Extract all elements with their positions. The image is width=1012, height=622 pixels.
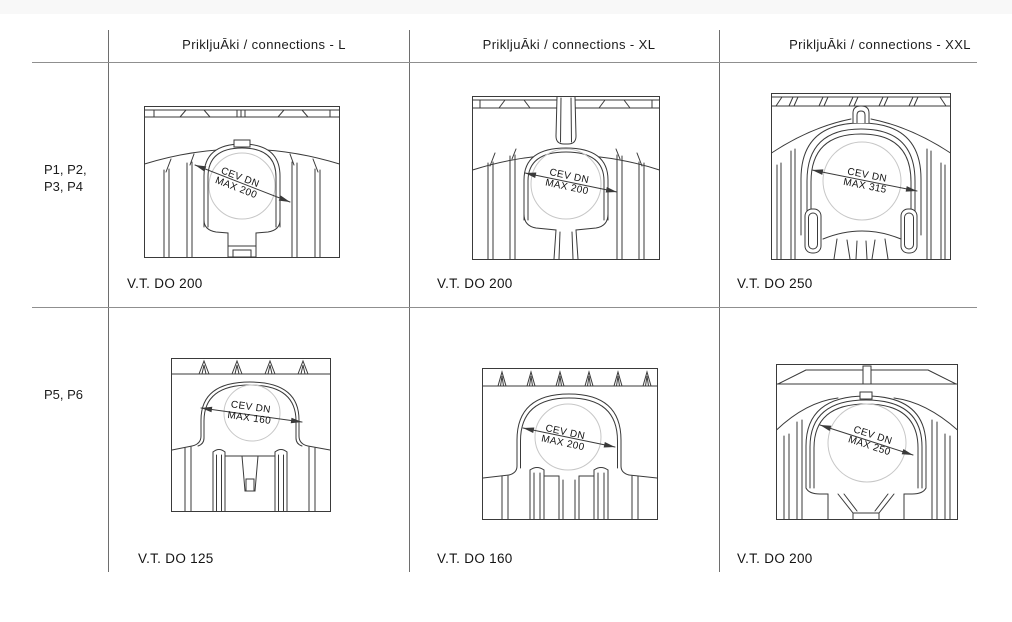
drawing-cell-l-p5p6: CEV DN MAX 160	[171, 358, 331, 512]
row-label-line: P5, P6	[44, 386, 83, 403]
drawing-cell-xl-p1p4: CEV DN MAX 200	[472, 96, 660, 260]
row-label-p5-p6: P5, P6	[44, 386, 83, 403]
column-header-xxl: PrikljuĀki / connections - XXL	[789, 37, 971, 52]
vt-label: V.T. DO 200	[737, 551, 813, 566]
top-strip	[0, 0, 1012, 14]
column-header-l: PrikljuĀki / connections - L	[182, 37, 346, 52]
drawing-cell-xl-p5p6: CEV DN MAX 200	[482, 368, 658, 520]
column-header-xl: PrikljuĀki / connections - XL	[483, 37, 656, 52]
drawing-cell-xxl-p5p6: CEV DN MAX 250	[776, 364, 958, 520]
header-underline	[32, 62, 977, 63]
column-divider-3	[719, 30, 720, 572]
column-divider-2	[409, 30, 410, 572]
vt-label: V.T. DO 125	[138, 551, 214, 566]
vt-label: V.T. DO 200	[437, 276, 513, 291]
vt-label: V.T. DO 200	[127, 276, 203, 291]
drawing-cell-xxl-p1p4: CEV DN MAX 315	[771, 93, 951, 260]
row-label-p1-p4: P1, P2, P3, P4	[44, 161, 87, 195]
tank-connection-drawing	[171, 358, 331, 512]
vt-label: V.T. DO 250	[737, 276, 813, 291]
column-divider-1	[108, 30, 109, 572]
vt-label: V.T. DO 160	[437, 551, 513, 566]
drawing-cell-l-p1p4: CEV DN MAX 200	[144, 106, 340, 258]
datasheet-page: { "columns": [ { "header": "PrikljuĀki /…	[0, 0, 1012, 622]
row-label-line: P1, P2,	[44, 161, 87, 178]
row-label-line: P3, P4	[44, 178, 87, 195]
row-divider	[32, 307, 977, 308]
